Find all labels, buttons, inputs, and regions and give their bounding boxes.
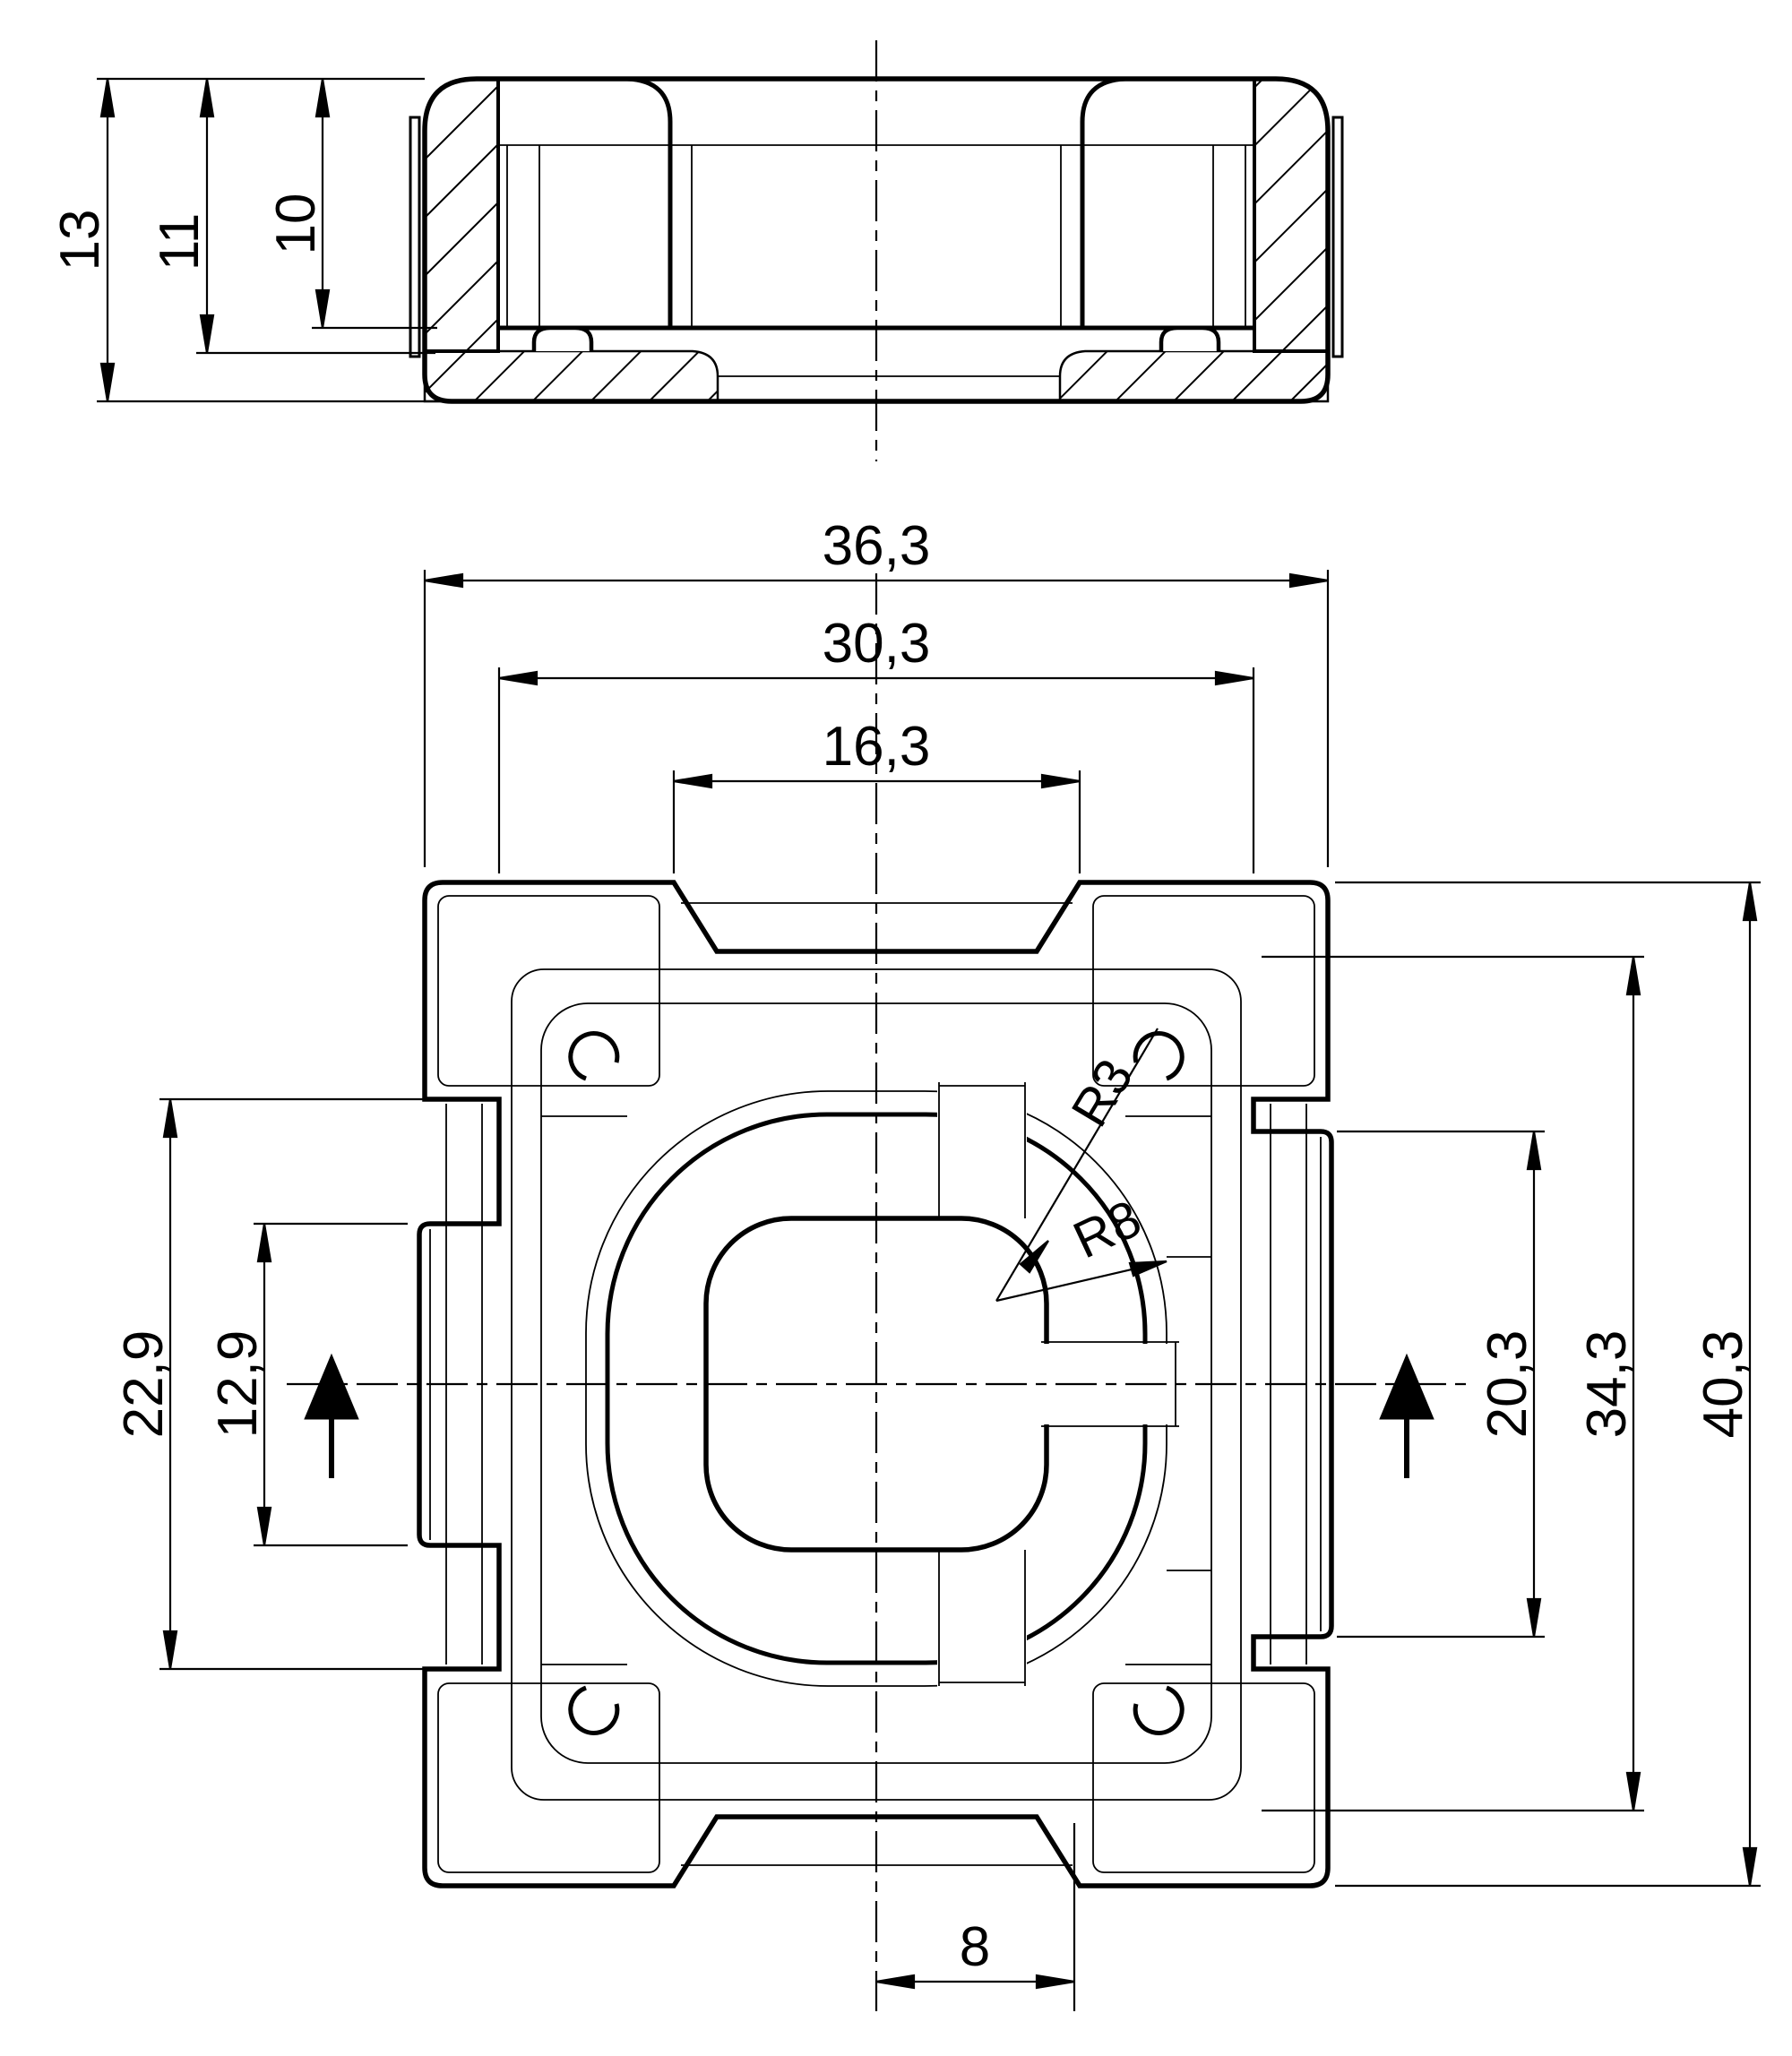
section-arrow-left <box>305 1355 358 1419</box>
arrow <box>1130 1261 1167 1276</box>
arrow <box>1627 1773 1640 1811</box>
corner-block-edge <box>438 896 659 1086</box>
arrow <box>316 79 329 116</box>
arrow <box>1528 1131 1540 1169</box>
corner-relief <box>571 1034 617 1079</box>
arrow <box>1744 882 1756 920</box>
dim-text-12-9: 12,9 <box>207 1330 269 1439</box>
dim-text-16-3: 16,3 <box>823 716 931 778</box>
dim-text-40-3: 40,3 <box>1693 1330 1754 1439</box>
arrow <box>876 1975 914 1988</box>
dim-text-36-3: 36,3 <box>823 515 931 577</box>
arrow <box>164 1099 177 1137</box>
arrow <box>101 364 114 401</box>
pocket-wall-left <box>627 79 670 328</box>
corner-block-edge <box>1093 1683 1314 1872</box>
pocket-wall-right <box>1082 79 1125 328</box>
dim-text-34-3: 34,3 <box>1576 1330 1638 1439</box>
dim-text-11: 11 <box>149 213 211 271</box>
floor-tab-left <box>534 328 591 351</box>
dim-text-22-9: 22,9 <box>113 1330 175 1439</box>
arrow <box>1037 1975 1074 1988</box>
arrow <box>201 79 213 116</box>
corner-block-edge <box>1093 896 1314 1086</box>
drawing-sheet: 13 11 10 36,3 30,3 16,3 22,9 12,9 20,3 3… <box>0 0 1792 2056</box>
arrow <box>1290 574 1328 587</box>
arrow <box>164 1631 177 1669</box>
dim-text-20-3: 20,3 <box>1477 1330 1538 1439</box>
section-right-wall-hatch <box>1254 79 1328 351</box>
radius-text-r3: R3 <box>1060 1049 1144 1136</box>
dim-text-8: 8 <box>960 1916 990 1978</box>
rib-bottom <box>937 1550 1027 1689</box>
arrow <box>1627 957 1640 994</box>
arrow <box>316 290 329 328</box>
arrow <box>425 574 462 587</box>
arrow <box>258 1224 271 1261</box>
dimensions <box>97 79 1761 2011</box>
arrow <box>101 79 114 116</box>
arrow <box>1042 775 1080 787</box>
dim-text-30-3: 30,3 <box>823 613 931 675</box>
section-base-hatch-left <box>425 351 718 401</box>
arrow <box>1528 1599 1540 1637</box>
radius-text-r8: R8 <box>1064 1189 1150 1269</box>
side-tab-right-edge <box>1333 117 1342 357</box>
cad-drawing: 13 11 10 36,3 30,3 16,3 22,9 12,9 20,3 3… <box>0 0 1792 2056</box>
corner-relief <box>571 1688 617 1733</box>
corner-relief <box>1135 1688 1182 1733</box>
arrow <box>258 1508 271 1545</box>
dim-text-13: 13 <box>49 210 111 271</box>
section-arrow-right <box>1380 1355 1434 1419</box>
side-tab-left-edge <box>410 117 419 357</box>
arrow <box>1216 672 1254 684</box>
arrow <box>499 672 537 684</box>
dim-text-10: 10 <box>265 194 327 255</box>
floor-tab-right <box>1161 328 1219 351</box>
rib-top <box>937 1080 1027 1218</box>
arrow <box>674 775 711 787</box>
dimension-texts: 13 11 10 36,3 30,3 16,3 22,9 12,9 20,3 3… <box>49 194 1754 1978</box>
corner-block-edge <box>438 1683 659 1872</box>
section-base-hatch-right <box>1060 351 1328 401</box>
section-cut-arrows <box>305 1355 1434 1478</box>
arrow <box>1744 1848 1756 1886</box>
arrow <box>201 315 213 353</box>
section-left-wall-hatch <box>425 79 498 351</box>
